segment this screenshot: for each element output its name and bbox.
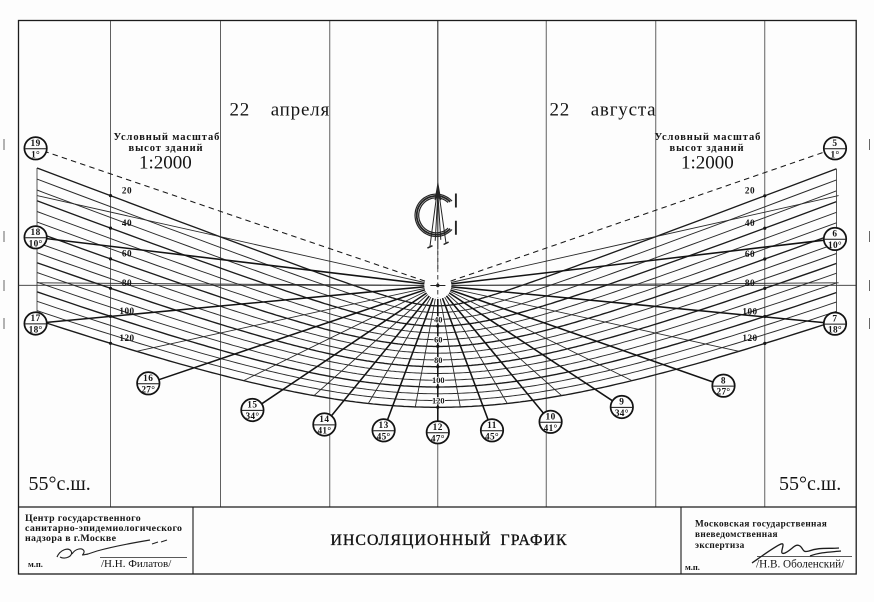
svg-text:120: 120 <box>742 333 757 343</box>
svg-text:60: 60 <box>434 336 442 345</box>
svg-text:27°: 27° <box>717 387 731 398</box>
svg-text:9: 9 <box>619 398 624 408</box>
svg-text:1°: 1° <box>831 149 840 160</box>
svg-text:55°с.ш.: 55°с.ш. <box>29 473 91 495</box>
svg-text:экспертиза: экспертиза <box>695 541 745 551</box>
svg-text:34°: 34° <box>615 408 629 419</box>
svg-text:18: 18 <box>30 228 40 238</box>
svg-text:надзора в г.Москве: надзора в г.Москве <box>25 533 117 544</box>
svg-text:1:2000: 1:2000 <box>139 153 192 174</box>
svg-text:1°: 1° <box>31 149 40 160</box>
svg-text:22 апреля: 22 апреля <box>230 100 331 121</box>
svg-text:1:2000: 1:2000 <box>681 153 734 174</box>
svg-text:13: 13 <box>378 421 388 431</box>
svg-text:/Н.В. Оболенский/: /Н.В. Оболенский/ <box>756 559 845 571</box>
svg-text:80: 80 <box>122 278 132 288</box>
svg-text:100: 100 <box>742 306 757 316</box>
svg-text:10°: 10° <box>29 238 43 249</box>
svg-text:20: 20 <box>122 185 132 195</box>
svg-text:Условный масштаб: Условный масштаб <box>655 132 762 143</box>
svg-text:45°: 45° <box>485 431 499 442</box>
svg-text:15: 15 <box>247 401 257 411</box>
svg-text:16: 16 <box>143 374 153 384</box>
svg-text:40: 40 <box>434 315 442 324</box>
svg-text:м.п.: м.п. <box>685 562 700 572</box>
svg-text:80: 80 <box>745 278 755 288</box>
svg-text:41°: 41° <box>317 426 331 437</box>
svg-text:40: 40 <box>122 218 132 228</box>
svg-text:18°: 18° <box>29 325 43 336</box>
svg-text:/Н.Н. Филатов/: /Н.Н. Филатов/ <box>101 558 172 570</box>
svg-text:60: 60 <box>122 249 132 259</box>
svg-text:55°с.ш.: 55°с.ш. <box>779 473 841 495</box>
svg-text:11: 11 <box>487 421 497 431</box>
svg-text:12: 12 <box>433 423 443 433</box>
svg-text:60: 60 <box>745 249 755 259</box>
svg-text:вневедомственная: вневедомственная <box>695 530 778 540</box>
svg-text:7: 7 <box>832 314 837 324</box>
svg-text:8: 8 <box>721 376 726 386</box>
svg-text:м.п.: м.п. <box>28 559 43 569</box>
svg-text:45°: 45° <box>377 431 391 442</box>
svg-text:14: 14 <box>319 415 329 425</box>
svg-text:17: 17 <box>30 314 40 324</box>
svg-text:10: 10 <box>545 412 555 422</box>
svg-text:10°: 10° <box>828 240 842 251</box>
svg-text:Условный масштаб: Условный масштаб <box>114 132 221 143</box>
svg-text:ИНСОЛЯЦИОННЫЙ ГРАФИК: ИНСОЛЯЦИОННЫЙ ГРАФИК <box>331 530 568 549</box>
svg-text:47°: 47° <box>431 433 445 444</box>
svg-text:19: 19 <box>30 139 40 149</box>
svg-text:18°: 18° <box>828 325 842 336</box>
svg-text:80: 80 <box>434 356 442 365</box>
svg-text:5: 5 <box>832 139 837 149</box>
svg-text:34°: 34° <box>245 411 259 422</box>
svg-text:22 августа: 22 августа <box>550 100 657 121</box>
svg-text:40: 40 <box>745 218 755 228</box>
svg-text:20: 20 <box>745 186 755 196</box>
svg-text:100: 100 <box>432 376 445 385</box>
svg-text:Московская государственная: Московская государственная <box>695 520 827 530</box>
svg-text:120: 120 <box>119 333 134 343</box>
svg-text:41°: 41° <box>544 423 558 434</box>
svg-text:120: 120 <box>432 397 445 406</box>
svg-text:6: 6 <box>832 230 837 240</box>
svg-text:27°: 27° <box>141 384 155 395</box>
svg-text:100: 100 <box>119 306 134 316</box>
